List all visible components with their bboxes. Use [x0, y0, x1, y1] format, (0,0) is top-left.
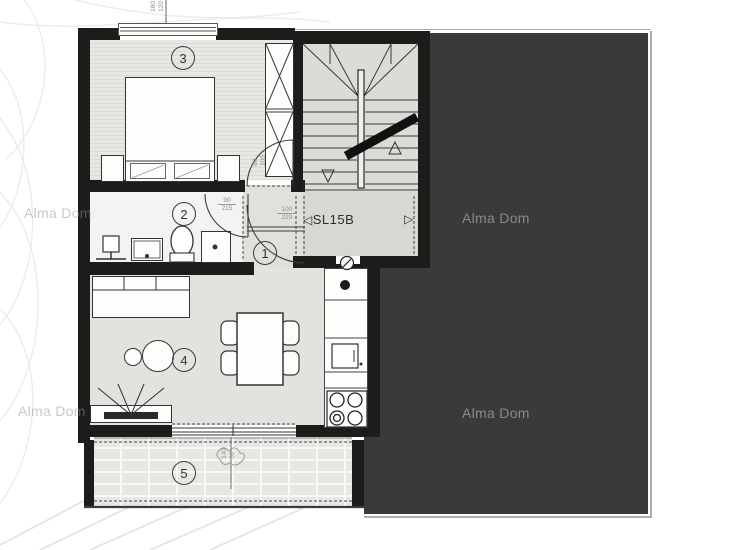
washing-machine [131, 238, 163, 261]
kitchen-counter [324, 268, 368, 428]
pillow-left [130, 163, 166, 179]
wall-top-left [78, 28, 120, 40]
wall-bathroom-bottom [78, 262, 254, 275]
dim-window: 180120 [150, 1, 165, 12]
nightstand-right [217, 155, 240, 182]
entry-marker-right-icon: ▷ [404, 212, 414, 226]
wall-top-mid [216, 28, 295, 40]
unit-label-row: ◁SL15B [303, 212, 354, 227]
wall-balcony-right [352, 440, 364, 507]
sofa [92, 276, 190, 318]
dim-bathroom-door: 90215 [218, 197, 236, 212]
plan-border-bottom [364, 516, 652, 518]
dim-entry-door: 100220 [277, 206, 297, 221]
watermark: Alma Dom [462, 210, 530, 226]
wall-stair-left [293, 31, 303, 192]
wall-living-bottom-left [78, 425, 172, 437]
entry-marker-left-icon: ◁ [303, 213, 313, 227]
wall-landing-bottom [293, 256, 430, 268]
entry-door-notch [336, 256, 360, 264]
room-number-badge: 4 [172, 348, 196, 372]
dim-balcony: 14060 [221, 448, 236, 459]
wall-stair-top [295, 31, 430, 44]
nightstand-left [101, 155, 124, 182]
wall-kitchen-right [368, 258, 380, 437]
room-number-badge: 5 [172, 461, 196, 485]
plan-border-right [650, 31, 652, 518]
dim-bedroom-door: 80205 [252, 155, 267, 166]
tv-stand [90, 405, 172, 423]
coffee-table-small [124, 348, 142, 366]
coffee-table-large [142, 340, 174, 372]
wardrobe [265, 43, 294, 177]
watermark: Alma Dom [18, 403, 86, 419]
entry-marker-right-glyph: ▷ [404, 212, 414, 226]
watermark: Alma Dom [24, 205, 92, 221]
watermark: Alma Dom [462, 405, 530, 421]
floor-plan-root: 1 2 3 4 5 ◁SL15B ▷ Alma Dom Alma Dom Alm… [0, 0, 740, 550]
unit-label: SL15B [313, 212, 355, 227]
bedroom-window [118, 23, 218, 36]
shower [201, 231, 231, 263]
wall-balcony-left [84, 440, 94, 507]
pillow-right [174, 163, 210, 179]
balcony-slider [172, 425, 296, 436]
room-number-badge: 2 [172, 202, 196, 226]
room-number-badge: 3 [171, 46, 195, 70]
wall-left-outer [78, 28, 90, 443]
stairwell-floor [303, 44, 418, 192]
dark-area-right [430, 33, 648, 514]
wall-stub-bedroom-door [291, 180, 305, 192]
room-number-badge: 1 [253, 241, 277, 265]
wall-stair-right [418, 31, 430, 268]
